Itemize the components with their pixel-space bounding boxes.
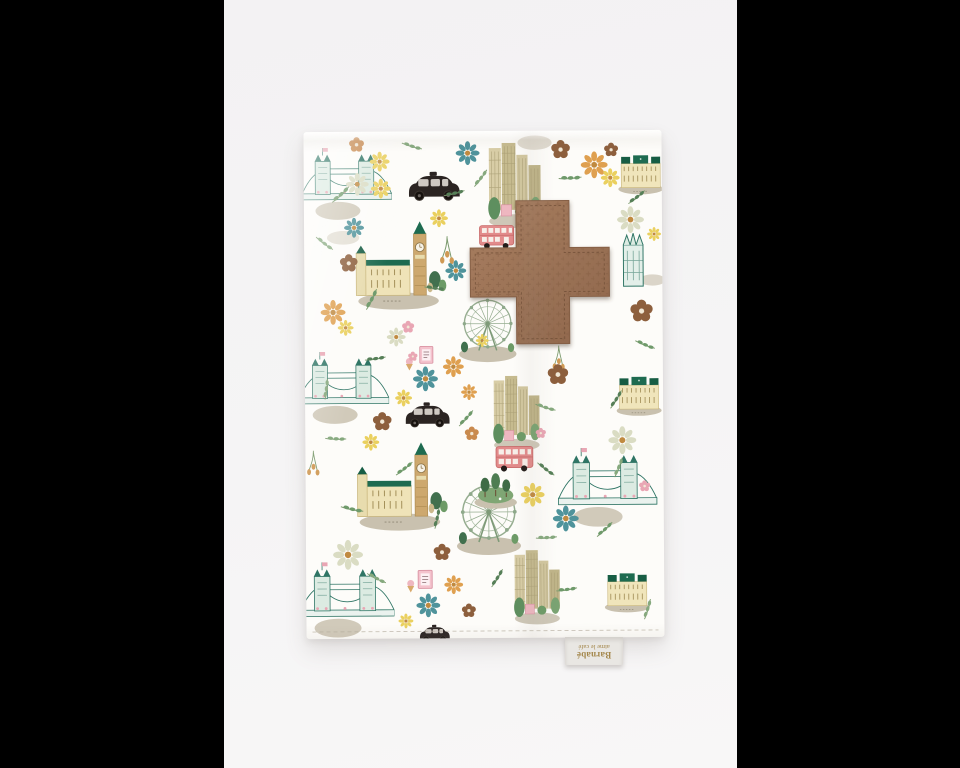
brand-tag-line1: Barnabé <box>565 650 623 660</box>
brand-tag-line2: aime le café <box>565 642 623 650</box>
scene: Barnabé aime le café <box>0 0 960 768</box>
product-photo: Barnabé aime le café <box>224 0 737 768</box>
brand-tag-text: Barnabé aime le café <box>565 637 623 665</box>
letterbox-right <box>737 0 960 768</box>
fabric-bottom-stitching <box>313 630 659 632</box>
fabric-cover <box>303 130 664 639</box>
brand-tag: Barnabé aime le café <box>565 637 623 665</box>
print-motifs <box>303 134 664 639</box>
letterbox-left <box>0 0 224 768</box>
fabric-print <box>303 130 664 639</box>
